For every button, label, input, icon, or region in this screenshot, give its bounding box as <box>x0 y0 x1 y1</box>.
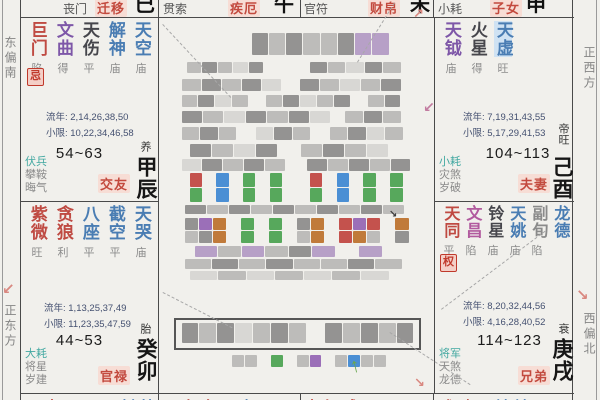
decade-age-range: 44~53 <box>41 332 118 349</box>
star-status: 旺 <box>498 60 509 76</box>
star-lingxing: 铃星 <box>485 205 502 239</box>
xiaoxian-ages: 小限: 5,17,29,41,53 <box>463 125 545 139</box>
star-status: 庙 <box>446 60 457 76</box>
palace-name-jiaoyou: 交友 <box>98 174 130 193</box>
star-bazuo: 八座 <box>80 205 98 241</box>
star-tiankong: 天空 <box>132 21 150 57</box>
star-tianshang: 天伤 <box>80 21 98 57</box>
liunian-ages: 流年: 2,14,26,38,50 <box>46 109 128 123</box>
star-status: 得 <box>58 60 69 76</box>
star-tianyue: 天钺 <box>442 21 460 57</box>
liunian-ages: 流年: 8,20,32,44,56 <box>463 298 545 312</box>
star-status: 平 <box>84 60 95 76</box>
xiaoxian-ages: 小限: 11,23,35,47,59 <box>44 316 131 330</box>
star-status: 陷 <box>466 242 477 258</box>
minor-star-label: 丧门 <box>63 0 87 17</box>
palace-hai-clipped[interactable]: 武破天地地三天旬 <box>434 393 574 400</box>
star-jiekong: 截空 <box>106 205 124 241</box>
palace-mao-guanlu[interactable]: 紫微旺 贪狼利 八座平 截空平 天哭庙 流年: 1,13,25,37,49 小限… <box>21 202 159 393</box>
minor-stars: 大耗 将星 岁建 <box>25 348 47 387</box>
palace-grid: 丧门 迁移 巳 贯索 疾厄 午 官符 财帛 未 小耗 子女 申 巨门陷 文曲得 … <box>20 0 573 400</box>
stem-branch-jiachen: 甲辰 <box>135 156 156 200</box>
star-status: 庙 <box>488 242 499 258</box>
palace-zi-clipped[interactable]: 大红咸天 <box>301 393 434 400</box>
arrow-down-right-icon: ↘ <box>414 376 425 389</box>
star-jieshen: 解神 <box>106 21 124 57</box>
palace-name-qianyi: 迁移 <box>95 0 127 17</box>
decade-age-range: 54~63 <box>41 145 118 162</box>
decade-age-range: 104~113 <box>480 145 556 162</box>
star-tianyao: 天姚 <box>507 205 524 239</box>
branch-si: 巳 <box>135 0 155 17</box>
palace-name-fuqi: 夫妻 <box>518 174 550 193</box>
liunian-ages: 流年: 7,19,31,43,55 <box>463 109 545 123</box>
minor-star-label: 贯索 <box>163 0 187 17</box>
direction-label-west-north: 西偏北 <box>583 312 595 357</box>
star-status: 庙 <box>136 60 147 76</box>
palace-wu-clipped[interactable]: 贯索 疾厄 午 <box>159 0 301 18</box>
life-stage: 帝旺 <box>557 123 568 145</box>
star-tiantong: 天同 <box>441 205 458 239</box>
star-status: 平 <box>84 244 95 260</box>
direction-label-true-west: 正西方 <box>583 46 595 91</box>
star-status: 得 <box>472 60 483 76</box>
redacted-mosaic <box>159 18 434 393</box>
branch-wu: 午 <box>274 0 294 17</box>
minor-star-label: 官符 <box>304 0 328 17</box>
palace-name-jie: 疾厄 <box>228 0 260 17</box>
star-tianku: 天哭 <box>132 205 150 241</box>
minor-stars: 伏兵 攀鞍 晦气 <box>25 156 47 195</box>
star-longde: 龙德 <box>551 205 568 239</box>
palace-you-fuqi[interactable]: 天钺庙 火星得 天虚旺 流年: 7,19,31,43,55 小限: 5,17,2… <box>434 18 574 202</box>
star-huoxing: 火星 <box>468 21 486 57</box>
life-stage: 衰 <box>557 323 568 334</box>
stem-branch-guimao: 癸卯 <box>135 338 156 382</box>
direction-label-true-east: 正东方 <box>4 304 16 349</box>
star-row: 紫微旺 贪狼利 八座平 截空平 天哭庙 <box>24 205 154 260</box>
palace-name-guanlu: 官禄 <box>98 366 130 385</box>
palace-chou-clipped[interactable]: 天左右天寿 <box>159 393 301 400</box>
xiaoxian-ages: 小限: 10,22,34,46,58 <box>46 125 134 139</box>
palace-chen-jiaoyou[interactable]: 巨门陷 文曲得 天伤平 解神庙 天空庙 忌 流年: 2,14,26,38,50 … <box>21 18 159 202</box>
ziwei-chart: { "margins": { "left_top": "东偏南", "left_… <box>0 0 600 400</box>
star-status: 庙 <box>110 60 121 76</box>
star-fuxun: 副旬 <box>529 205 546 239</box>
star-tanlang: 贪狼 <box>54 205 72 241</box>
life-stage: 胎 <box>139 323 150 334</box>
decade-age-range: 114~123 <box>470 332 549 349</box>
star-status: 平 <box>110 244 121 260</box>
sihua-badge-ji: 忌 <box>27 68 44 86</box>
star-status: 旺 <box>32 244 43 260</box>
star-status: 陷 <box>532 242 543 258</box>
direction-label-east-south: 东偏南 <box>4 36 16 81</box>
palace-si-clipped[interactable]: 丧门 迁移 巳 <box>21 0 159 18</box>
arrow-up-right-icon: ↗ <box>413 7 424 20</box>
star-tianxu: 天虚 <box>494 21 512 57</box>
star-wenchang: 文昌 <box>463 205 480 239</box>
palace-name-zinv: 子女 <box>490 0 522 17</box>
arrow-down-right-icon: ↘ <box>576 288 589 303</box>
star-status: 庙 <box>136 244 147 260</box>
sihua-badge-quan: 权 <box>440 254 457 272</box>
palace-shen-clipped[interactable]: 小耗 子女 申 <box>434 0 574 18</box>
arrow-down-left-icon: ↙ <box>2 282 15 297</box>
life-stage: 养 <box>139 141 150 152</box>
stem-branch-gengxu: 庚戌 <box>551 338 572 382</box>
minor-stars: 小耗 灾煞 岁破 <box>439 156 461 195</box>
palace-name-xiongdi: 兄弟 <box>518 366 550 385</box>
star-row: 天钺庙 火星得 天虚旺 <box>438 21 516 76</box>
xiaoxian-ages: 小限: 4,16,28,40,52 <box>463 314 545 328</box>
branch-shen: 申 <box>526 0 546 17</box>
star-ziwei: 紫微 <box>28 205 46 241</box>
outer-border-right <box>596 0 597 400</box>
minor-star-label: 小耗 <box>438 0 462 17</box>
stem-branch-jiyou: 己酉 <box>551 156 572 200</box>
arrow-down-right-icon: ↘ <box>389 210 397 220</box>
palace-yin-clipped[interactable]: 天太天天天封劫 <box>21 393 159 400</box>
arrow-down-left-icon: ↙ <box>423 100 435 114</box>
liunian-ages: 流年: 1,13,25,37,49 <box>44 300 126 314</box>
star-wenqu: 文曲 <box>54 21 72 57</box>
star-status: 利 <box>58 244 69 260</box>
star-jumen: 巨门 <box>28 21 46 57</box>
star-row: 天同平 文昌陷 铃星庙 天姚庙 副旬陷 龙德 <box>438 205 570 258</box>
